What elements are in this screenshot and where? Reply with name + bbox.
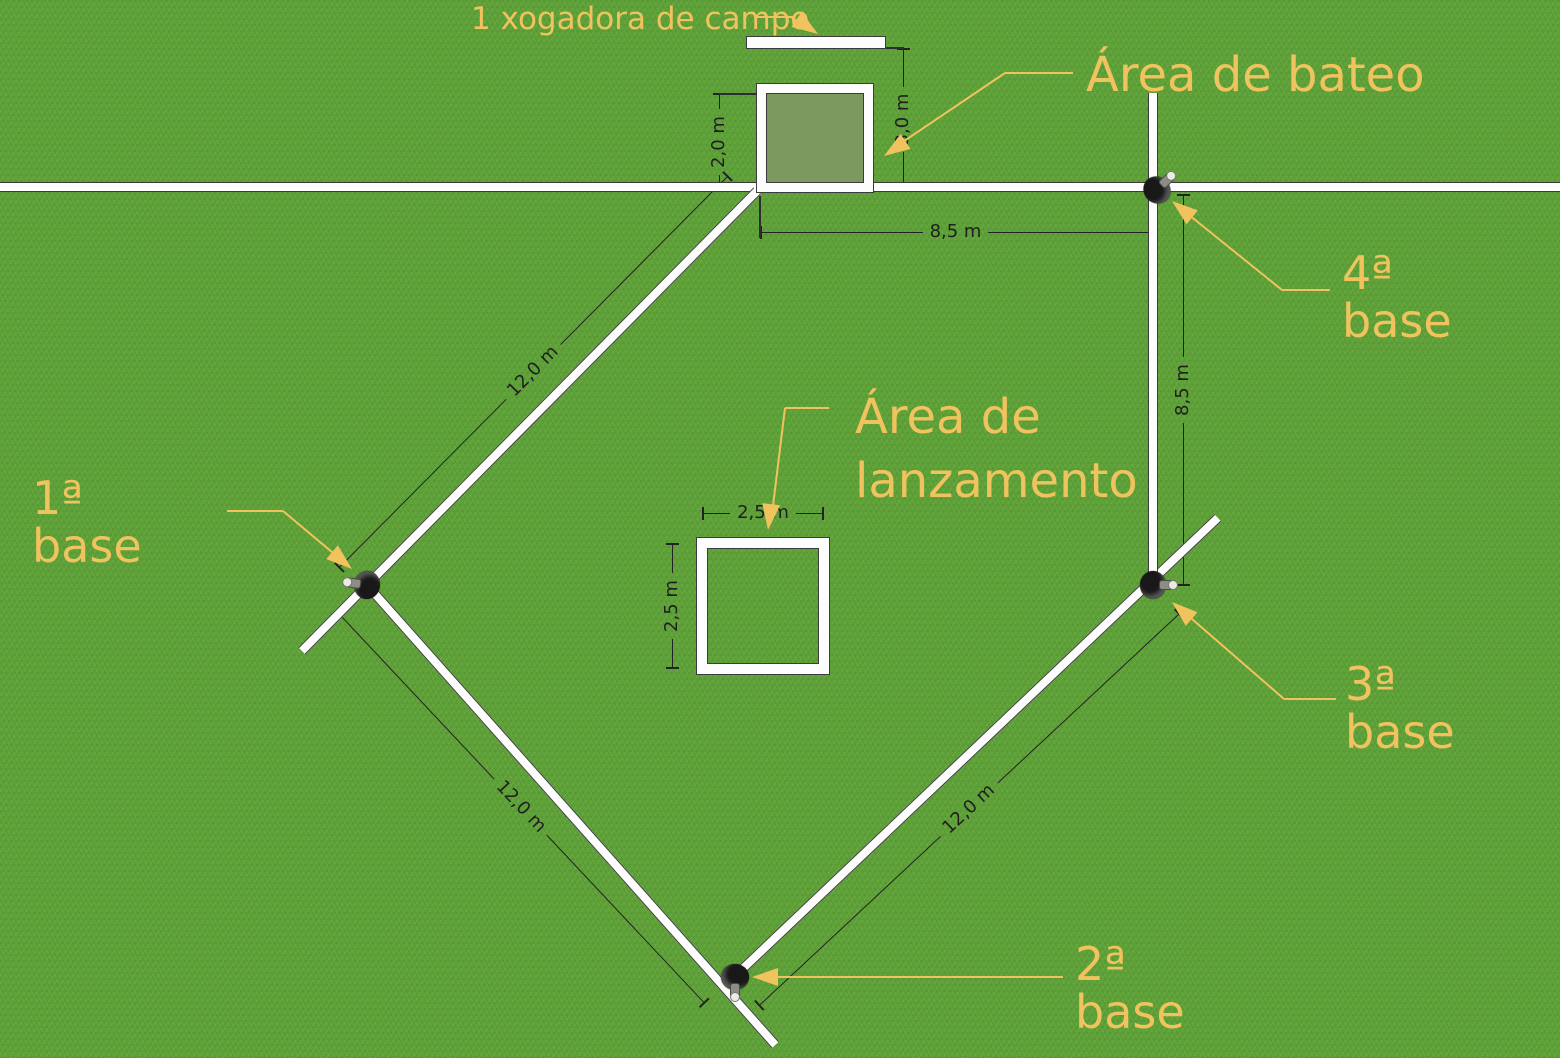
leader-batting-area bbox=[1005, 72, 1073, 74]
arrowhead-icon-base2 bbox=[752, 968, 778, 986]
base-marker-1 bbox=[352, 569, 382, 600]
fielder-bar bbox=[746, 36, 886, 49]
leader-base1 bbox=[227, 510, 283, 512]
label-batting-area: Área de bateo bbox=[1086, 50, 1425, 100]
label-pitching-area-line2: lanzamento bbox=[855, 449, 1138, 513]
dimension-label: 8,5 m bbox=[1174, 357, 1192, 423]
leader-base4 bbox=[1282, 289, 1330, 291]
label-pitching-area: Área de lanzamento bbox=[855, 385, 1138, 513]
label-pitching-area-line1: Área de bbox=[855, 385, 1138, 449]
label-base4: 4ª base bbox=[1342, 249, 1368, 277]
base-marker-3 bbox=[1140, 571, 1166, 599]
extension-line-bar-right bbox=[886, 47, 904, 49]
leader-base3 bbox=[1284, 698, 1336, 700]
label-base1: 1ª base bbox=[32, 474, 58, 502]
leader-base3-diag bbox=[1178, 606, 1285, 699]
line-base3-base4 bbox=[1148, 93, 1158, 587]
dimension-side-home-base1: 12,0 m bbox=[339, 176, 727, 567]
label-base3: 3ª base bbox=[1345, 660, 1371, 688]
dimension-side-base1-base2: 12,0 m bbox=[337, 611, 705, 1002]
pitching-square bbox=[697, 538, 829, 674]
label-base2: 2ª base bbox=[1075, 940, 1101, 968]
extension-line-batting-top bbox=[719, 93, 758, 95]
label-fielder: 1 xogadora de campo bbox=[471, 3, 809, 36]
extension-line-apex bbox=[759, 196, 761, 238]
field-diagram: 12,0 m 12,0 m 12,0 m 8,5 m 8,5 m 2,0 m 3… bbox=[0, 0, 1560, 1058]
leader-base4-diag bbox=[1177, 205, 1283, 291]
base-marker-2 bbox=[721, 964, 749, 990]
dimension-label: 8,5 m bbox=[923, 223, 989, 241]
leader-base2 bbox=[757, 976, 1063, 978]
dimension-label: 2,0 m bbox=[710, 109, 728, 175]
leader-pitching-area bbox=[785, 407, 829, 409]
batting-square bbox=[757, 84, 873, 192]
dimension-label: 2,5 m bbox=[663, 573, 681, 639]
arrowhead-icon-pitching-area bbox=[759, 503, 780, 531]
dimension-label: 12,0 m bbox=[934, 776, 1003, 842]
